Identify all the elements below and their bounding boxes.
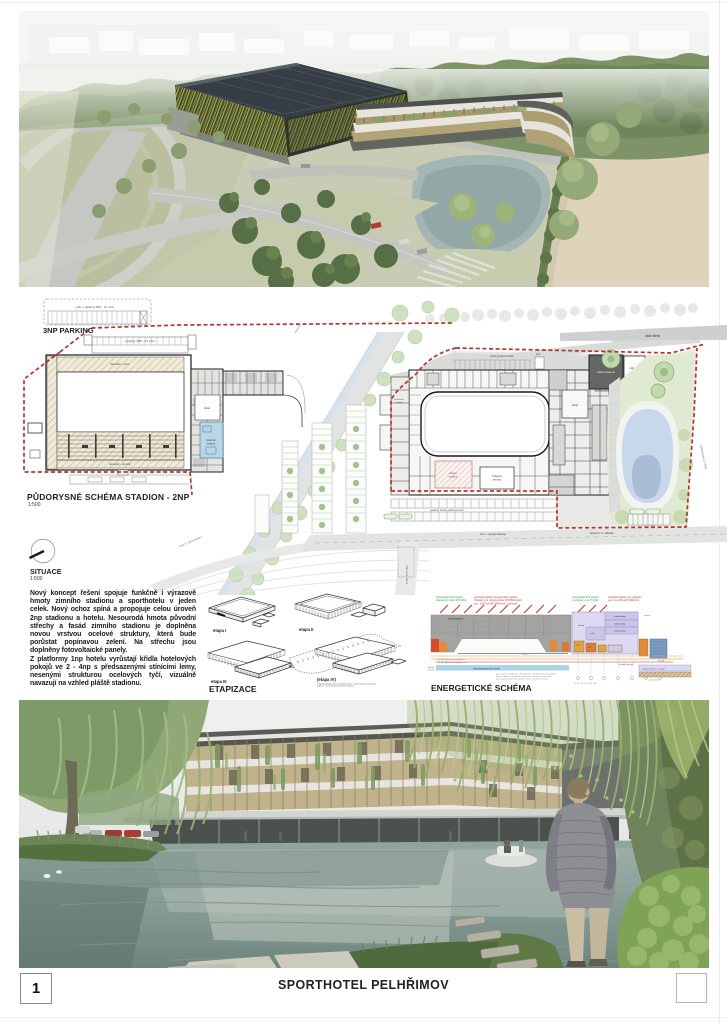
svg-text:-2° +4° +8° +12° +16°: -2° +4° +8° +12° +16° +20°	[574, 683, 597, 685]
svg-text:smět techn. boudí: smět techn. boudí	[405, 565, 408, 584]
svg-text:geotermální 1+3 vrty/tí: geotermální 1+3 vrty/tí	[643, 667, 665, 670]
svg-text:fanoušci - domácí: fanoušci - domácí	[109, 462, 131, 466]
svg-text:technické: technické	[394, 398, 404, 401]
svg-text:zdroj energetické vazby: zdroj energetické vazby	[473, 667, 501, 670]
svg-text:Alejová: Alejová	[293, 323, 301, 333]
svg-text:(etapa IV): (etapa IV)	[317, 677, 336, 682]
svg-text:wellness/sauna: wellness/sauna	[597, 370, 615, 374]
svg-text:hotel: hotel	[204, 406, 210, 410]
svg-text:kola: kola	[536, 353, 541, 356]
svg-text:zimní stadion: zimní stadion	[448, 616, 464, 620]
svg-text:tour d. sportovišům: tour d. sportovišům	[179, 535, 203, 548]
svg-text:35 m: 35 m	[523, 654, 528, 656]
svg-text:hl. 18m: hl. 18m	[658, 660, 665, 662]
svg-text:| tlumení tep./výk |: | tlumení tep./výk |	[618, 663, 635, 666]
svg-text:zemina: zemina	[428, 670, 436, 672]
svg-text:hotel pokoje: hotel pokoje	[614, 615, 627, 618]
svg-text:hotel pokoje: hotel pokoje	[614, 623, 627, 626]
svg-text:ochoz: ochoz	[644, 615, 650, 617]
svg-text:bus - výstup/nástup: bus - výstup/nástup	[480, 532, 506, 536]
svg-text:hotel: hotel	[572, 403, 578, 407]
svg-text:parking 2NP - 21 míst: parking 2NP - 21 míst	[126, 339, 155, 343]
svg-text:etapa II: etapa II	[299, 627, 313, 632]
svg-text:a el. cca 200-320 MWh/rok: a el. cca 200-320 MWh/rok	[608, 598, 640, 602]
svg-text:etapa I: etapa I	[213, 628, 226, 633]
svg-text:pro období povrchového území a: pro období povrchového území a letní v k…	[496, 678, 549, 681]
svg-text:objektu 2. úrovně parkování na: objektu 2. úrovně parkování nadzemí stad…	[317, 685, 354, 687]
svg-text:bruslení: bruslení	[449, 476, 458, 479]
svg-text:zázemí: zázemí	[395, 402, 402, 404]
svg-text:snídaně: snídaně	[207, 443, 216, 446]
svg-text:ulice Bělá: ulice Bělá	[645, 334, 660, 338]
svg-text:atrium: atrium	[578, 624, 584, 627]
svg-text:přlp + parking 3NP - 16 míst: přlp + parking 3NP - 16 míst	[76, 305, 114, 309]
svg-text:el. ČE, tepel. a sezónních ...: el. ČE, tepel. a sezónních ... m	[438, 661, 467, 664]
svg-text:teplo kondenzátor rekuperace: teplo kondenzátor rekuperace	[438, 658, 466, 661]
svg-text:plánovaný výkon 180 kWp: plánovaný výkon 180 kWp	[436, 598, 467, 602]
svg-text:areál ul. K Jatkám: areál ul. K Jatkám	[590, 531, 615, 535]
svg-text:cyklostezka ul. Bělá: cyklostezka ul. Bělá	[699, 444, 708, 469]
svg-text:s výkonem cca 70 kWp: s výkonem cca 70 kWp	[572, 598, 599, 602]
svg-text:fanoušci - tmno: fanoušci - tmno	[110, 362, 130, 366]
svg-text:permafrost: permafrost	[649, 679, 659, 682]
svg-text:parking hosté parking hotel: parking hosté parking hotel	[430, 508, 464, 512]
svg-text:hotel pokoje: hotel pokoje	[614, 630, 627, 633]
svg-text:tréninky: tréninky	[493, 479, 502, 482]
svg-text:parking/zásob krátko: parking/zásob krátko	[490, 354, 514, 358]
